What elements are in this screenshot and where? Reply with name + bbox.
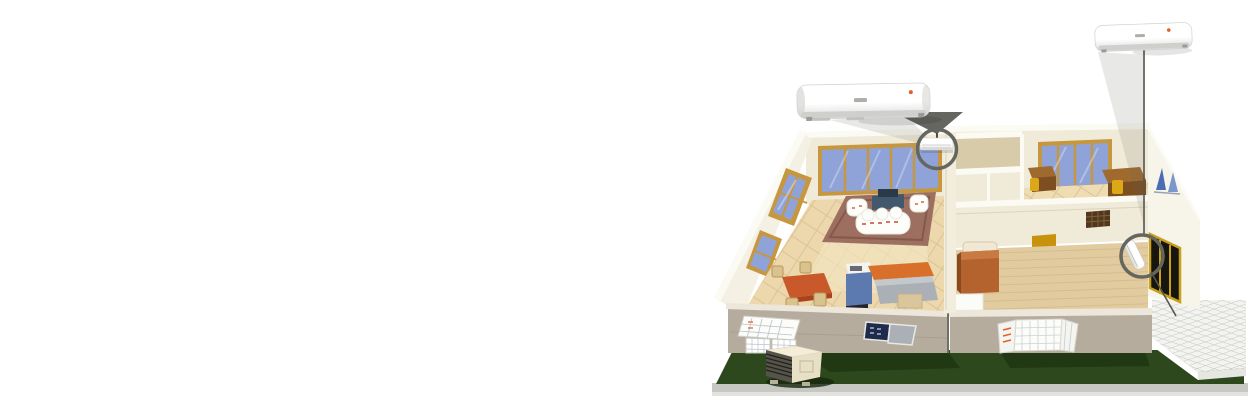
bay-left-wing <box>998 320 1016 353</box>
page-canvas <box>0 0 1256 401</box>
bay-center-grid <box>1015 320 1061 350</box>
dining-chair <box>772 266 783 277</box>
sofa-cushion <box>862 209 874 221</box>
armchair-body <box>910 195 928 212</box>
dining-chair <box>814 293 826 306</box>
right-side-wall <box>1148 127 1200 310</box>
bay-window-right <box>998 319 1078 353</box>
brand-logo-mark <box>854 98 867 102</box>
sink-basin <box>850 266 862 271</box>
chair-yellow <box>1112 180 1123 194</box>
mount-foot <box>1101 49 1106 52</box>
desk-top <box>1028 166 1056 178</box>
wall-vent <box>1086 210 1110 228</box>
sink-window-gray-panel <box>888 324 916 345</box>
kitchen-box <box>898 294 922 308</box>
mount-foot <box>806 117 812 121</box>
condenser-foot <box>802 382 810 386</box>
sofa-cushion <box>876 208 888 220</box>
desk-left <box>1028 166 1056 192</box>
chair-yellow <box>1030 178 1039 191</box>
mount-foot <box>1182 44 1187 47</box>
bed-side <box>957 252 961 294</box>
wall-ac-unit-living-room <box>920 138 953 153</box>
unit-vent <box>812 118 830 121</box>
tv-screen <box>878 189 898 197</box>
brand-logo-mark <box>1135 34 1145 37</box>
house-cutaway-illustration <box>0 0 1256 401</box>
dining-chair <box>800 262 811 273</box>
lawn-shadow-right <box>1000 352 1150 368</box>
condenser-foot <box>770 380 778 384</box>
closet-right-edge <box>1020 134 1024 208</box>
sofa <box>856 207 910 234</box>
unit-vent <box>846 117 864 120</box>
indoor-unit-enlarged-right <box>1095 22 1193 57</box>
left-module <box>714 128 950 353</box>
armchair-right <box>910 195 928 212</box>
indoor-unit-enlarged-left <box>797 83 943 128</box>
cabinet-front <box>846 272 872 306</box>
mount-foot <box>918 113 924 117</box>
bed <box>957 242 999 294</box>
partition-wall <box>942 126 956 314</box>
sofa-cushion <box>890 207 902 219</box>
sink-window-navy-panel <box>864 322 890 341</box>
wall-ac-shadow <box>921 150 953 153</box>
base-highlight <box>712 392 1248 396</box>
